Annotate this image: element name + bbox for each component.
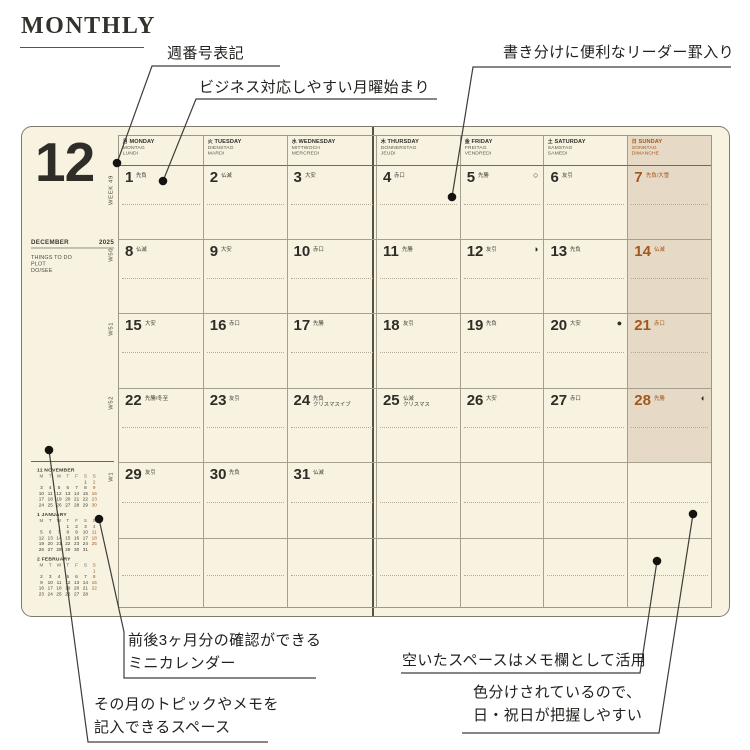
day-meta: 仏滅 <box>136 246 147 252</box>
day-cell-inner: 29友引 <box>119 463 203 483</box>
day-cell-inner: 25仏滅クリスマス <box>377 389 460 415</box>
day-cell: 22先勝/冬至 <box>119 388 203 462</box>
day-cell: 30先負 <box>203 462 287 538</box>
week-number-label: W50 <box>107 245 115 265</box>
day-cell: 31仏滅 <box>287 462 376 538</box>
mini-calendar: 1 JANUARYMTWTFSS123456789101112131415161… <box>37 512 103 553</box>
day-cell: 14仏滅 <box>627 239 711 313</box>
mini-calendar-grid: MTWTFSS123456789101112131415161718192021… <box>37 473 103 508</box>
day-cell-inner: 1先負 <box>119 166 203 186</box>
annotation-mini-calendar-line2: ミニカレンダー <box>128 652 321 675</box>
date-number: 26 <box>467 392 484 409</box>
day-cell: 8仏滅 <box>119 239 203 313</box>
moon-phase-icon: ● <box>617 319 622 328</box>
date-number: 13 <box>550 243 567 260</box>
day-meta: 友引 <box>486 246 497 252</box>
day-meta: 仏滅 <box>221 172 232 178</box>
annotation-monday-start: ビジネス対応しやすい月曜始まり <box>199 76 430 99</box>
day-meta: 友引 <box>562 172 573 178</box>
day-meta: 先負 <box>229 469 240 475</box>
day-cell-inner: 15大安 <box>119 314 203 334</box>
day-cell: 11先勝 <box>376 239 460 313</box>
empty-cell <box>203 538 287 608</box>
day-meta: 友引 <box>403 320 414 326</box>
day-meta: 友引 <box>229 395 240 401</box>
annotation-topic-space-line2: 記入できるスペース <box>94 716 279 739</box>
day-cell-inner: 2仏滅 <box>204 166 287 186</box>
rokuyo-label: 友引 <box>562 172 573 178</box>
day-cell-inner: 17先勝 <box>288 314 376 334</box>
product-diagram: MONTHLY 週番号表記 ビジネス対応しやすい月曜始まり 書き分けに便利なリー… <box>0 0 750 750</box>
rokuyo-label: 赤口 <box>229 320 240 326</box>
weekday-header-inner: 土 SATURDAYSAMSTAGSAMEDI <box>544 136 630 156</box>
day-cell-inner: 22先勝/冬至 <box>119 389 203 409</box>
day-meta: 先負クリスマスイブ <box>313 395 351 407</box>
day-cell: 12友引◑ <box>460 239 544 313</box>
date-number: 24 <box>294 392 311 409</box>
mini-calendar-day: 26 <box>63 591 72 597</box>
date-number: 29 <box>125 466 142 483</box>
weekday-header-inner: 木 THURSDAYDONNERSTAGJEUDI <box>377 136 463 156</box>
day-cell-inner: 30先負 <box>204 463 287 483</box>
day-cell-inner: 20大安 <box>544 314 627 334</box>
weekday-name: 火 TUESDAY <box>207 138 289 145</box>
day-cell: 1先負 <box>119 165 203 239</box>
day-cell-inner: 14仏滅 <box>628 240 711 260</box>
moon-phase-icon: ○ <box>533 171 538 180</box>
rokuyo-label: 友引 <box>403 320 414 326</box>
mini-calendar-day: 27 <box>72 591 81 597</box>
rokuyo-label: 先負 <box>313 395 351 401</box>
day-meta: 赤口 <box>394 172 405 178</box>
annotation-memo-space: 空いたスペースはメモ欄として活用 <box>402 649 646 672</box>
date-number: 9 <box>210 243 218 260</box>
mini-calendar-day <box>90 591 99 597</box>
rokuyo-label: 先負 <box>229 469 240 475</box>
date-number: 22 <box>125 392 142 409</box>
moon-phase-icon: ◑ <box>533 245 538 254</box>
day-meta: 友引 <box>145 469 156 475</box>
annotation-topic-space-line1: その月のトピックやメモを <box>94 693 279 716</box>
rokuyo-label: 赤口 <box>313 246 324 252</box>
day-cell: 17先勝 <box>287 313 376 387</box>
mini-calendar-day: 26 <box>55 502 64 508</box>
weekday-header-cell: 金 FRIDAYFREITAGVENDREDI <box>460 136 544 165</box>
date-number: 16 <box>210 317 227 334</box>
day-cell: 9大安 <box>203 239 287 313</box>
month-name: DECEMBER <box>31 239 69 246</box>
empty-cell <box>119 538 203 608</box>
date-number: 6 <box>550 169 558 186</box>
weekday-name: 土 SATURDAY <box>548 138 630 145</box>
week-number-label: W52 <box>107 393 115 413</box>
weekday-kanji: 火 <box>207 138 212 144</box>
info-column-rule <box>31 461 114 462</box>
day-meta: 先勝 <box>654 395 665 401</box>
rokuyo-label: 大安 <box>486 395 497 401</box>
date-number: 31 <box>294 466 311 483</box>
annotation-mini-calendar-line1: 前後3ヶ月分の確認ができる <box>128 629 321 652</box>
weekday-name-fr: MARDI <box>207 150 289 156</box>
mini-calendar-day: 28 <box>72 502 81 508</box>
day-meta: 大安 <box>145 320 156 326</box>
mini-calendar-day: 28 <box>81 591 90 597</box>
day-cell-inner: 10赤口 <box>288 240 376 260</box>
rokuyo-label: 大安 <box>305 172 316 178</box>
day-cell-inner: 21赤口 <box>628 314 711 334</box>
weekday-kanji: 木 <box>381 138 386 144</box>
day-meta: 大安 <box>570 320 581 326</box>
date-number: 25 <box>383 392 400 409</box>
weekday-name-fr: JEUDI <box>381 150 463 156</box>
title-underline <box>20 47 144 48</box>
day-cell: 3大安 <box>287 165 376 239</box>
weekday-name: 水 WEDNESDAY <box>291 138 379 145</box>
empty-cell <box>627 538 711 608</box>
rokuyo-label: 仏滅 <box>403 395 430 401</box>
day-meta: 仏滅 <box>313 469 324 475</box>
rokuyo-label: 仏滅 <box>221 172 232 178</box>
day-meta: 赤口 <box>313 246 324 252</box>
day-cell-inner: 11先勝 <box>377 240 460 260</box>
rokuyo-label: 赤口 <box>654 320 665 326</box>
day-meta: 先勝 <box>402 246 413 252</box>
day-meta: 仏滅クリスマス <box>403 395 430 407</box>
day-meta: 先勝/冬至 <box>145 395 168 401</box>
day-cell-inner: 4赤口 <box>377 166 460 186</box>
mini-calendar-day <box>90 546 99 552</box>
mini-calendar-day: 30 <box>72 546 81 552</box>
day-cell: 28先勝◐ <box>627 388 711 462</box>
rokuyo-label: 赤口 <box>394 172 405 178</box>
weekday-header-cell: 月 MONDAYMONTAGLUNDI <box>119 136 203 165</box>
day-cell: 5先勝○ <box>460 165 544 239</box>
mini-calendar-title: 1 JANUARY <box>37 512 103 518</box>
rokuyo-label: 先負 <box>486 320 497 326</box>
mini-calendar-day: 28 <box>55 546 64 552</box>
weekday-header-inner: 水 WEDNESDAYMITTWOCHMERCREDI <box>288 136 379 156</box>
mini-calendar-day: 24 <box>46 591 55 597</box>
empty-cell <box>460 462 544 538</box>
day-cell: 16赤口 <box>203 313 287 387</box>
empty-cell <box>460 538 544 608</box>
empty-cell <box>376 538 460 608</box>
empty-cell <box>543 538 627 608</box>
day-meta: 大安 <box>221 246 232 252</box>
day-cell: 2仏滅 <box>203 165 287 239</box>
date-number: 2 <box>210 169 218 186</box>
day-cell-inner: 16赤口 <box>204 314 287 334</box>
holiday-note: クリスマスイブ <box>313 401 351 407</box>
day-meta: 大安 <box>486 395 497 401</box>
weekday-header-cell: 土 SATURDAYSAMSTAGSAMEDI <box>543 136 627 165</box>
day-meta: 先負 <box>486 320 497 326</box>
todo-list-labels: THINGS TO DO PLOT DO/SEE <box>31 254 72 274</box>
day-cell-inner: 7先負/大雪 <box>628 166 711 186</box>
date-number: 8 <box>125 243 133 260</box>
mini-calendar-day: 26 <box>37 546 46 552</box>
day-cell: 25仏滅クリスマス <box>376 388 460 462</box>
planner-page: 12 DECEMBER 2025 THINGS TO DO PLOT DO/SE… <box>21 126 730 617</box>
day-cell: 26大安 <box>460 388 544 462</box>
day-cell-inner: 31仏滅 <box>288 463 376 483</box>
month-number: 12 <box>35 135 94 190</box>
day-cell-inner: 27赤口 <box>544 389 627 409</box>
weekday-kanji: 日 <box>632 138 637 144</box>
date-number: 27 <box>550 392 567 409</box>
mini-calendar-day: 23 <box>37 591 46 597</box>
date-number: 7 <box>634 169 642 186</box>
date-number: 1 <box>125 169 133 186</box>
weekday-name: 金 FRIDAY <box>464 138 546 145</box>
weekday-header-inner: 火 TUESDAYDIENSTAGMARDI <box>204 136 290 156</box>
rokuyo-label: 大安 <box>145 320 156 326</box>
rokuyo-label: 先勝/冬至 <box>145 395 168 401</box>
weekday-name: 月 MONDAY <box>123 138 206 145</box>
rokuyo-label: 先負 <box>570 246 581 252</box>
day-cell-inner: 3大安 <box>288 166 376 186</box>
day-meta: 赤口 <box>570 395 581 401</box>
calendar-grid: 月 MONDAYMONTAGLUNDI火 TUESDAYDIENSTAGMARD… <box>118 135 712 608</box>
holiday-note: クリスマス <box>403 401 430 407</box>
mini-calendar-grid: MTWTFSS123456789101112131415161718192021… <box>37 562 103 597</box>
weekday-kanji: 月 <box>123 138 128 144</box>
day-cell: 20大安● <box>543 313 627 387</box>
day-cell: 13先負 <box>543 239 627 313</box>
rokuyo-label: 大安 <box>221 246 232 252</box>
day-meta: 赤口 <box>229 320 240 326</box>
rokuyo-label: 友引 <box>145 469 156 475</box>
weekday-header-inner: 金 FRIDAYFREITAGVENDREDI <box>461 136 547 156</box>
day-meta: 仏滅 <box>654 246 665 252</box>
mini-calendar-day: 24 <box>37 502 46 508</box>
weekday-name: 日 SUNDAY <box>632 138 714 145</box>
mini-calendar-day: 27 <box>46 546 55 552</box>
annotation-color-coding-line2: 日・祝日が把握しやすい <box>473 704 642 727</box>
date-number: 18 <box>383 317 400 334</box>
mini-calendar: 11 NOVEMBERMTWTFSS1234567891011121314151… <box>37 467 103 508</box>
todo-line: DO/SEE <box>31 267 72 274</box>
day-cell-inner: 6友引 <box>544 166 627 186</box>
date-number: 5 <box>467 169 475 186</box>
day-meta: 先負 <box>570 246 581 252</box>
day-cell: 29友引 <box>119 462 203 538</box>
mini-calendar-day: 25 <box>55 591 64 597</box>
day-meta: 先負 <box>136 172 147 178</box>
weekday-kanji: 土 <box>548 138 553 144</box>
weekday-kanji: 金 <box>464 138 469 144</box>
rokuyo-label: 友引 <box>486 246 497 252</box>
weekday-name-fr: DIMANCHE <box>632 150 714 156</box>
mini-calendar: 2 FEBRUARYMTWTFSS12345678910111213141516… <box>37 556 103 597</box>
day-cell: 6友引 <box>543 165 627 239</box>
date-number: 4 <box>383 169 391 186</box>
rokuyo-label: 仏滅 <box>654 246 665 252</box>
day-cell-inner: 26大安 <box>461 389 544 409</box>
rokuyo-label: 先勝 <box>478 172 489 178</box>
date-number: 10 <box>294 243 311 260</box>
mini-calendar-day: 30 <box>90 502 99 508</box>
rokuyo-label: 赤口 <box>570 395 581 401</box>
date-number: 15 <box>125 317 142 334</box>
month-name-row: DECEMBER 2025 <box>31 239 114 248</box>
date-number: 17 <box>294 317 311 334</box>
weekday-name: 木 THURSDAY <box>381 138 463 145</box>
rokuyo-label: 先負 <box>136 172 147 178</box>
day-cell: 18友引 <box>376 313 460 387</box>
mini-calendar-grid: MTWTFSS123456789101112131415161718192021… <box>37 518 103 553</box>
day-meta: 先勝 <box>313 320 324 326</box>
day-cell: 10赤口 <box>287 239 376 313</box>
weekday-header-cell: 日 SUNDAYSONNTAGDIMANCHE <box>627 136 711 165</box>
day-cell: 23友引 <box>203 388 287 462</box>
date-number: 28 <box>634 392 651 409</box>
empty-cell <box>287 538 376 608</box>
mini-calendar-day: 29 <box>63 546 72 552</box>
annotation-mini-calendar: 前後3ヶ月分の確認ができる ミニカレンダー <box>128 629 321 675</box>
mini-calendar-day: 27 <box>63 502 72 508</box>
day-cell-inner: 19先負 <box>461 314 544 334</box>
date-number: 30 <box>210 466 227 483</box>
weekday-name-fr: MERCREDI <box>291 150 379 156</box>
week-number-label: W51 <box>107 319 115 339</box>
date-number: 23 <box>210 392 227 409</box>
date-number: 11 <box>383 243 399 260</box>
mini-calendar-day: 29 <box>81 502 90 508</box>
week-number-label: W1 <box>107 467 115 487</box>
day-meta: 赤口 <box>654 320 665 326</box>
day-cell-inner: 8仏滅 <box>119 240 203 260</box>
rokuyo-label: 友引 <box>229 395 240 401</box>
rokuyo-label: 仏滅 <box>136 246 147 252</box>
rokuyo-label: 大安 <box>570 320 581 326</box>
mini-calendar-title: 11 NOVEMBER <box>37 467 103 473</box>
day-cell-inner: 9大安 <box>204 240 287 260</box>
day-cell: 21赤口 <box>627 313 711 387</box>
day-meta: 大安 <box>305 172 316 178</box>
date-number: 3 <box>294 169 302 186</box>
day-cell-inner: 12友引 <box>461 240 544 260</box>
day-cell-inner: 18友引 <box>377 314 460 334</box>
annotation-color-coding: 色分けされているので、 日・祝日が把握しやすい <box>473 681 642 727</box>
day-cell-inner: 24先負クリスマスイブ <box>288 389 376 415</box>
day-cell-inner: 13先負 <box>544 240 627 260</box>
day-cell: 19先負 <box>460 313 544 387</box>
weekday-name-fr: VENDREDI <box>464 150 546 156</box>
empty-cell <box>543 462 627 538</box>
day-cell-inner: 5先勝 <box>461 166 544 186</box>
weekday-header-cell: 木 THURSDAYDONNERSTAGJEUDI <box>376 136 460 165</box>
day-cell-inner: 28先勝 <box>628 389 711 409</box>
day-meta: 先勝 <box>478 172 489 178</box>
annotation-color-coding-line1: 色分けされているので、 <box>473 681 642 704</box>
mini-calendar-title: 2 FEBRUARY <box>37 556 103 562</box>
weekday-kanji: 水 <box>291 138 296 144</box>
weekday-name-fr: SAMEDI <box>548 150 630 156</box>
day-cell-inner: 23友引 <box>204 389 287 409</box>
day-cell: 24先負クリスマスイブ <box>287 388 376 462</box>
day-meta: 先負/大雪 <box>646 172 669 178</box>
moon-phase-icon: ◐ <box>701 394 706 403</box>
rokuyo-label: 先勝 <box>402 246 413 252</box>
date-number: 20 <box>550 317 567 334</box>
day-cell: 15大安 <box>119 313 203 387</box>
week-number-label: WEEK 49 <box>107 174 115 205</box>
weekday-header-cell: 火 TUESDAYDIENSTAGMARDI <box>203 136 287 165</box>
mini-calendar-day: 25 <box>46 502 55 508</box>
day-cell: 7先負/大雪 <box>627 165 711 239</box>
page-title: MONTHLY <box>21 13 156 40</box>
weekday-header-cell: 水 WEDNESDAYMITTWOCHMERCREDI <box>287 136 376 165</box>
date-number: 19 <box>467 317 484 334</box>
rokuyo-label: 仏滅 <box>313 469 324 475</box>
weekday-name-fr: LUNDI <box>123 150 206 156</box>
day-cell: 4赤口 <box>376 165 460 239</box>
day-cell: 27赤口 <box>543 388 627 462</box>
rokuyo-label: 先勝 <box>313 320 324 326</box>
annotation-week-number: 週番号表記 <box>167 42 244 65</box>
weekday-header-inner: 日 SUNDAYSONNTAGDIMANCHE <box>628 136 714 156</box>
weekday-header-inner: 月 MONDAYMONTAGLUNDI <box>119 136 206 156</box>
annotation-topic-space: その月のトピックやメモを 記入できるスペース <box>94 693 279 739</box>
mini-calendar-day: 31 <box>81 546 90 552</box>
annotation-leader-rule: 書き分けに便利なリーダー罫入り <box>503 41 734 64</box>
date-number: 21 <box>634 317 651 334</box>
empty-cell <box>376 462 460 538</box>
rokuyo-label: 先負/大雪 <box>646 172 669 178</box>
empty-cell <box>627 462 711 538</box>
mini-calendars: 11 NOVEMBERMTWTFSS1234567891011121314151… <box>37 467 103 601</box>
date-number: 12 <box>467 243 484 260</box>
date-number: 14 <box>634 243 651 260</box>
rokuyo-label: 先勝 <box>654 395 665 401</box>
